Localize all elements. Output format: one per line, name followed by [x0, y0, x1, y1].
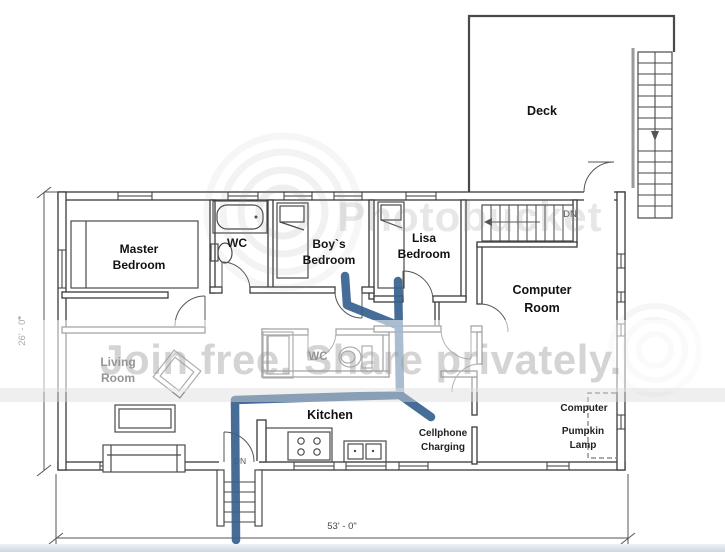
master-bedroom-label-1: Master: [120, 242, 159, 256]
computer-device-label: Computer: [560, 403, 607, 414]
lisa-bedroom-label-2: Bedroom: [398, 247, 451, 261]
bottom-strip: [0, 544, 725, 552]
watermark-swirl-icon: [207, 136, 359, 288]
pumpkin-lamp-label-1: Pumpkin: [562, 426, 604, 437]
sofa: [103, 445, 185, 472]
kitchen-label: Kitchen: [307, 408, 353, 422]
external-stairs: [638, 52, 672, 218]
floor-plan-screenshot: Deck: [0, 0, 725, 552]
cellphone-charging-label-1: Cellphone: [419, 428, 468, 439]
floor-plan-svg: Deck: [0, 0, 725, 552]
kitchen-sink: [344, 441, 386, 462]
dimension-width-label: 53' - 0": [327, 521, 356, 532]
watermark-tagline: Join free. Share privately.: [100, 336, 622, 383]
watermark-brand: Photobucket: [337, 193, 602, 240]
watermark-band-shadow: [0, 388, 725, 402]
dimension-width: [49, 474, 635, 544]
computer-room-label-1: Computer: [512, 283, 571, 297]
pumpkin-lamp-label-2: Lamp: [570, 440, 597, 451]
computer-room-label-2: Room: [524, 301, 559, 315]
tv-table: [115, 405, 175, 432]
cellphone-charging-label-2: Charging: [421, 442, 465, 453]
kitchen-counter: [266, 428, 332, 462]
master-bedroom-label-2: Bedroom: [113, 258, 166, 272]
deck-label: Deck: [527, 104, 557, 118]
